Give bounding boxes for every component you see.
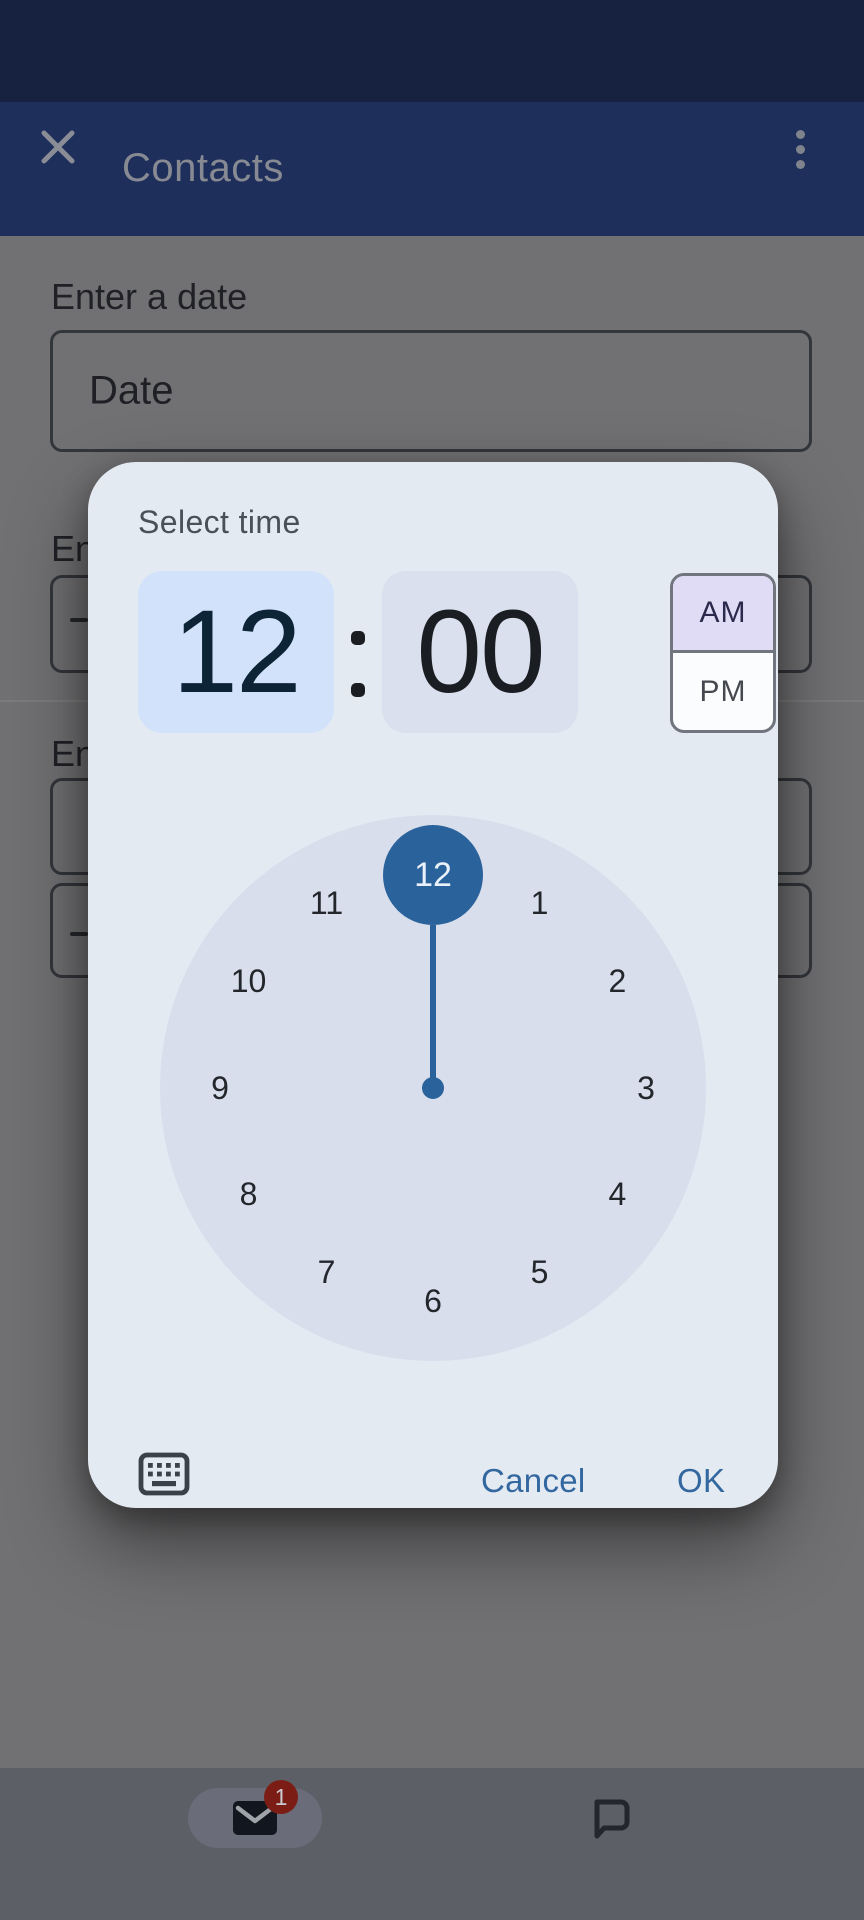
clock-number-11[interactable]: 11: [303, 880, 351, 928]
ok-button[interactable]: OK: [677, 1462, 725, 1500]
field-text-fragment: [70, 932, 88, 936]
pm-button[interactable]: PM: [673, 653, 773, 730]
clock-number-7[interactable]: 7: [303, 1248, 351, 1296]
period-toggle: AM PM: [670, 573, 776, 733]
date-input[interactable]: Date: [50, 330, 812, 452]
close-button[interactable]: [34, 123, 82, 171]
clock-number-1[interactable]: 1: [516, 880, 564, 928]
clock-number-8[interactable]: 8: [225, 1171, 273, 1219]
cancel-button[interactable]: Cancel: [481, 1462, 586, 1500]
nav-item-mail[interactable]: 1: [188, 1788, 322, 1848]
bottom-navigation: 1: [0, 1768, 864, 1920]
clock-number-10[interactable]: 10: [225, 958, 273, 1006]
date-field-label: Enter a date: [51, 276, 247, 318]
clock-number-2[interactable]: 2: [593, 958, 641, 1006]
minute-field[interactable]: 00: [382, 571, 578, 733]
time-picker-dialog: Select time 12 00 AM PM 111098765432112 …: [88, 462, 778, 1508]
nav-item-chat[interactable]: [587, 1797, 631, 1841]
hour-field[interactable]: 12: [138, 571, 334, 733]
clock-number-5[interactable]: 5: [516, 1248, 564, 1296]
keyboard-mode-button[interactable]: [138, 1451, 194, 1503]
clock-dial[interactable]: 111098765432112 12: [160, 815, 706, 1361]
mail-badge: 1: [264, 1780, 298, 1814]
dialog-title: Select time: [138, 504, 301, 541]
clock-number-6[interactable]: 6: [409, 1277, 457, 1325]
clock-center-dot: [422, 1077, 444, 1099]
app-bar: Contacts: [0, 102, 864, 236]
minute-value: 00: [416, 584, 543, 720]
kebab-dot: [796, 145, 805, 154]
kebab-dot: [796, 130, 805, 139]
clock-selected-hour[interactable]: 12: [383, 825, 483, 925]
clock-hand[interactable]: [430, 925, 436, 1088]
keyboard-icon: [138, 1484, 190, 1501]
clock-number-3[interactable]: 3: [622, 1064, 670, 1112]
page-title: Contacts: [122, 146, 284, 191]
time-separator: [334, 571, 382, 733]
date-placeholder: Date: [89, 369, 174, 414]
status-bar: [0, 0, 864, 102]
phone-screen: Contacts Enter a date Date En En Select …: [0, 0, 864, 1920]
chat-icon: [587, 1828, 631, 1845]
kebab-dot: [796, 160, 805, 169]
close-icon: [34, 158, 82, 175]
clock-number-9[interactable]: 9: [196, 1064, 244, 1112]
overflow-menu-button[interactable]: [776, 124, 824, 172]
hour-value: 12: [172, 584, 299, 720]
field-text-fragment: [70, 618, 88, 622]
clock-number-4[interactable]: 4: [593, 1171, 641, 1219]
am-button[interactable]: AM: [673, 576, 773, 653]
